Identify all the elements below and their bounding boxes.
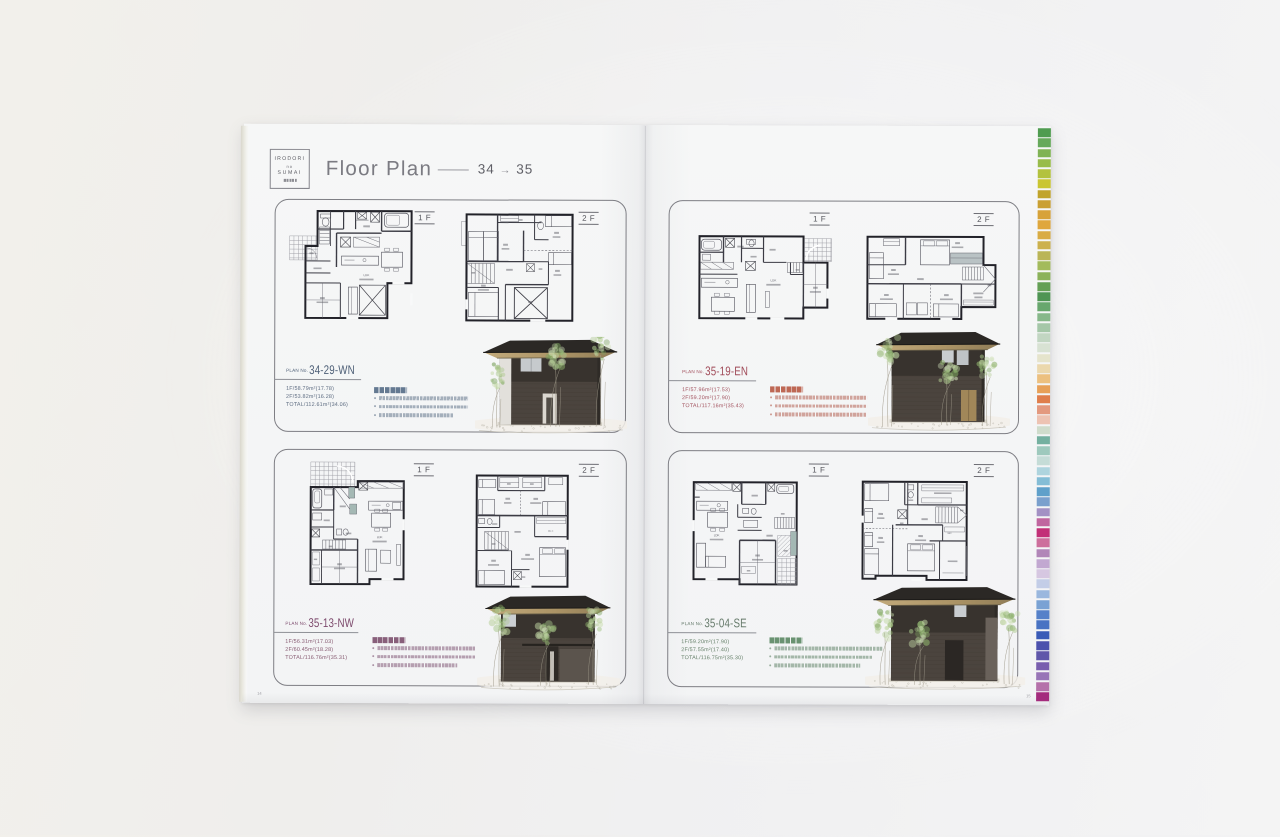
svg-text:LDK: LDK xyxy=(714,533,720,537)
svg-text:LDK: LDK xyxy=(377,535,383,539)
svg-text:WIC: WIC xyxy=(947,533,952,535)
svg-text:W.I.C: W.I.C xyxy=(548,531,554,533)
svg-text:LDK: LDK xyxy=(770,278,776,282)
svg-text:LDK: LDK xyxy=(364,273,370,277)
